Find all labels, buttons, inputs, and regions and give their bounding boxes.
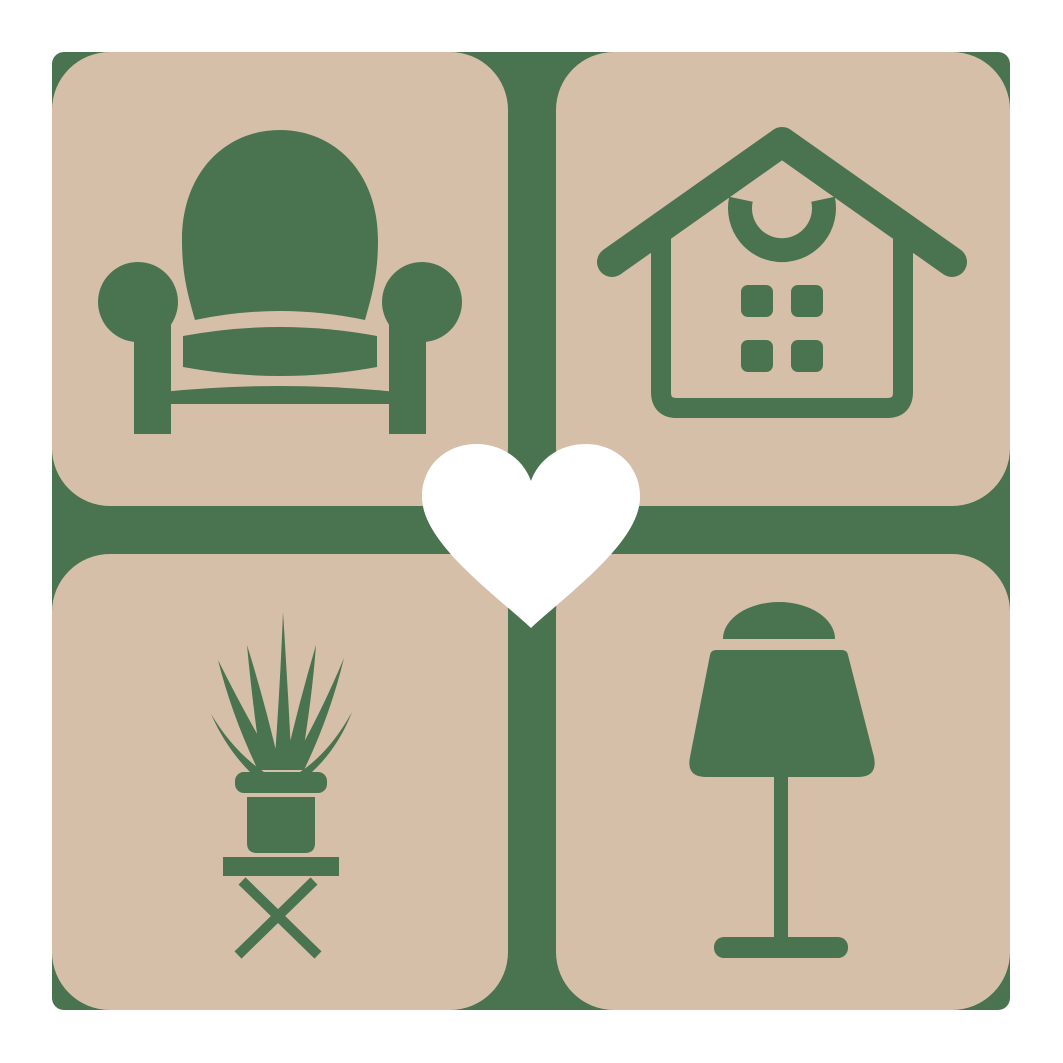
- home-decor-heart-logo: [0, 0, 1063, 1063]
- lamp-base: [714, 937, 848, 958]
- tile-plant: [52, 554, 508, 1010]
- chair-cushion: [183, 327, 377, 376]
- tile-background: [556, 52, 1010, 506]
- pot-rim: [235, 772, 327, 793]
- window-pane: [741, 285, 773, 317]
- lamp-stem: [774, 777, 788, 942]
- pot-body: [247, 797, 315, 853]
- window-pane: [791, 285, 823, 317]
- chair-leg-right: [389, 300, 426, 434]
- chair-leg-left: [134, 300, 171, 434]
- window-pane: [741, 340, 773, 372]
- tile-armchair: [52, 52, 508, 506]
- lamp-shade: [689, 650, 874, 777]
- tile-lamp: [556, 554, 1010, 1010]
- tile-house: [556, 52, 1010, 506]
- stool-top: [223, 857, 339, 876]
- logo-canvas: [0, 0, 1063, 1063]
- window-pane: [791, 340, 823, 372]
